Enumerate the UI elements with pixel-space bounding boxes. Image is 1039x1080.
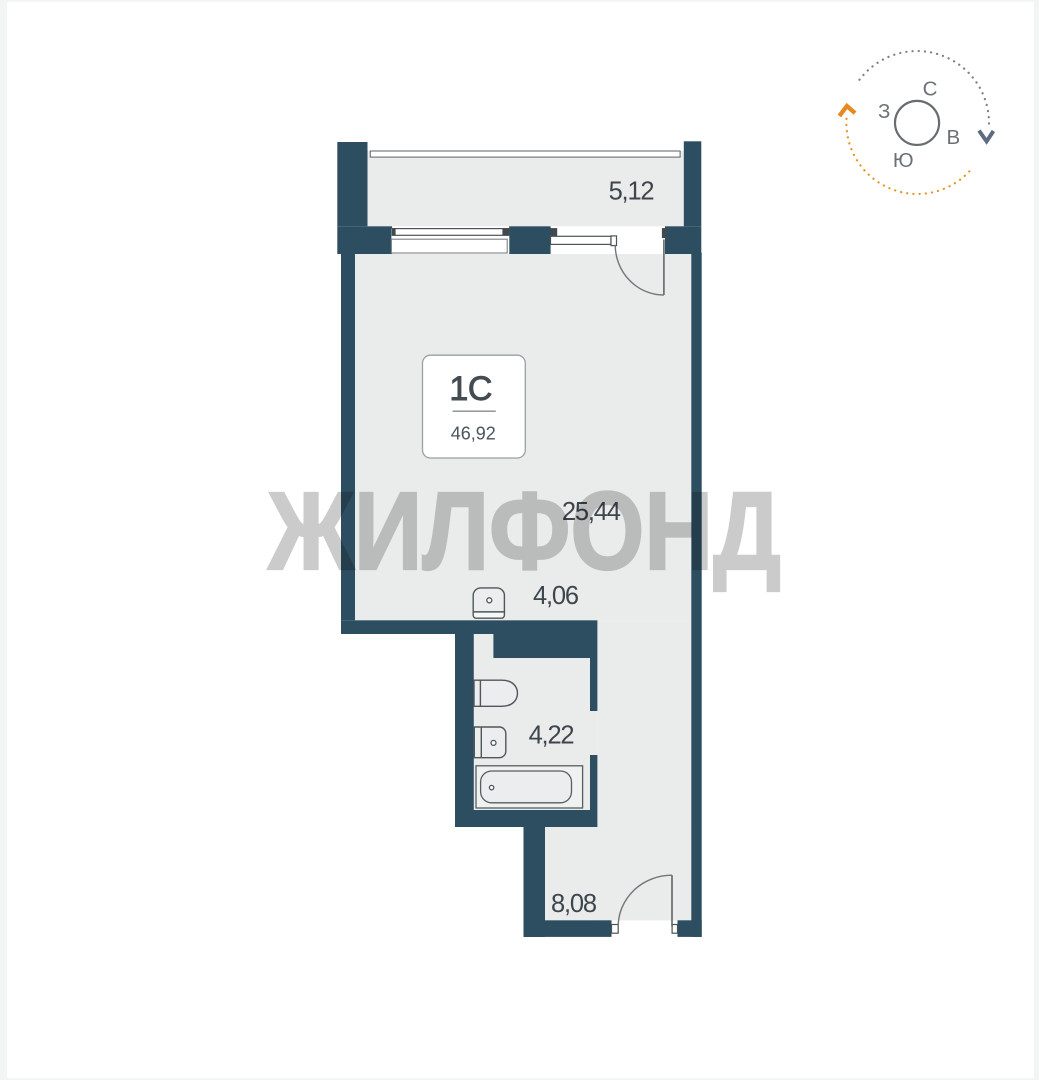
svg-text:46,92: 46,92 — [451, 424, 496, 444]
svg-text:З: З — [878, 100, 890, 123]
svg-text:В: В — [947, 126, 961, 149]
svg-text:5,12: 5,12 — [609, 178, 654, 206]
svg-text:8,08: 8,08 — [551, 890, 597, 918]
svg-text:1С: 1С — [449, 370, 492, 408]
svg-text:4,22: 4,22 — [529, 722, 574, 750]
svg-text:С: С — [923, 77, 938, 100]
svg-text:Ю: Ю — [893, 149, 914, 172]
